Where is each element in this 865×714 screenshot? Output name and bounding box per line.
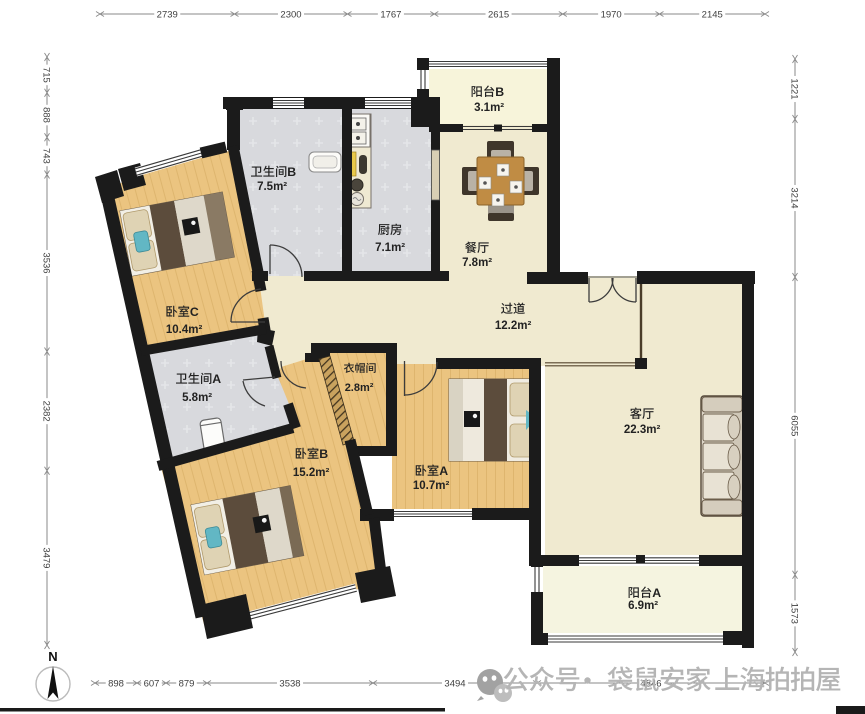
svg-text:3536: 3536 (41, 252, 52, 273)
svg-text:1970: 1970 (601, 9, 622, 20)
svg-text:12.2m²: 12.2m² (495, 320, 532, 332)
svg-text:2.8m²: 2.8m² (345, 382, 374, 394)
svg-text:607: 607 (144, 678, 160, 689)
svg-text:10.7m²: 10.7m² (413, 480, 450, 492)
svg-text:A: A (439, 464, 448, 478)
svg-text:3214: 3214 (789, 187, 800, 208)
svg-text:743: 743 (41, 148, 52, 164)
svg-text:2300: 2300 (280, 9, 301, 20)
svg-text:2739: 2739 (157, 9, 178, 20)
svg-text:3.1m²: 3.1m² (474, 102, 504, 114)
svg-text:6.9m²: 6.9m² (628, 600, 658, 612)
svg-text:898: 898 (108, 678, 124, 689)
svg-text:3479: 3479 (41, 547, 52, 568)
svg-text:879: 879 (179, 678, 195, 689)
svg-text:5.8m²: 5.8m² (182, 392, 212, 404)
svg-text:2382: 2382 (41, 401, 52, 422)
svg-text:1573: 1573 (789, 603, 800, 624)
svg-text:B: B (495, 85, 504, 99)
svg-text:3538: 3538 (279, 678, 300, 689)
svg-text:10.4m²: 10.4m² (166, 324, 203, 336)
svg-text:3494: 3494 (444, 678, 465, 689)
svg-text:N: N (48, 649, 57, 664)
svg-text:1767: 1767 (380, 9, 401, 20)
svg-text:C: C (190, 305, 199, 319)
svg-text:B: B (319, 447, 328, 461)
svg-text:7.5m²: 7.5m² (257, 181, 287, 193)
svg-text:7.8m²: 7.8m² (462, 257, 492, 269)
svg-text:1221: 1221 (789, 78, 800, 99)
svg-text:A: A (652, 586, 661, 600)
svg-text:6055: 6055 (789, 415, 800, 436)
svg-text:15.2m²: 15.2m² (293, 467, 330, 479)
svg-text:A: A (212, 372, 221, 386)
svg-text:888: 888 (41, 107, 52, 123)
svg-text:22.3m²: 22.3m² (624, 424, 661, 436)
svg-text:7.1m²: 7.1m² (375, 242, 405, 254)
svg-text:2145: 2145 (702, 9, 723, 20)
svg-text:2615: 2615 (488, 9, 509, 20)
svg-text:B: B (287, 165, 296, 179)
svg-text:715: 715 (41, 67, 52, 83)
